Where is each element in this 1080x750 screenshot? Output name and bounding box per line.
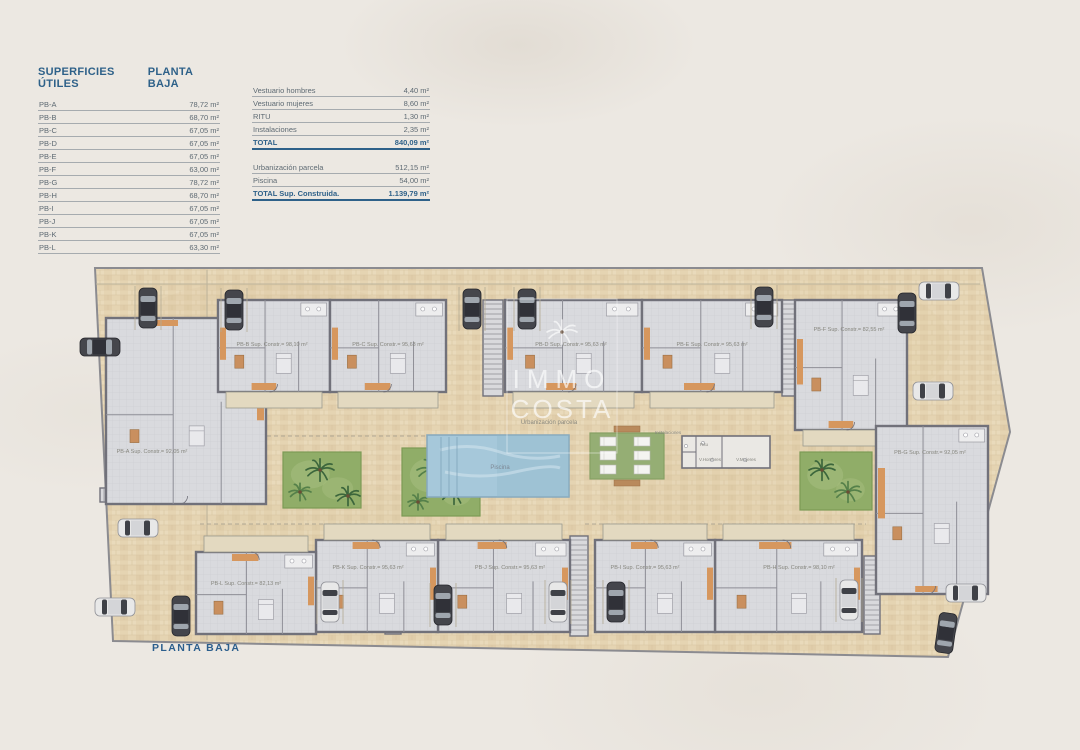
vmujeres-label: V.Mujeres <box>736 457 757 462</box>
unit-label-PB-K: PB-K Sup. Constr.= 95,63 m² <box>332 565 403 571</box>
unit-label-PB-F: PB-F Sup. Constr.= 82,55 m² <box>814 327 885 333</box>
pool-label: Piscina <box>490 465 510 471</box>
sun-lounger-icon <box>634 451 650 460</box>
unit-label-PB-L: PB-L Sup. Constr.= 82,13 m² <box>211 581 281 587</box>
pool: Piscina <box>427 435 569 497</box>
site-plan: PB-A Sup. Constr.= 92,05 m²PB-B Sup. Con… <box>0 0 1080 750</box>
unit-PB-G: PB-G Sup. Constr.= 92,05 m² <box>876 426 988 594</box>
instalaciones-label: Instalaciones <box>655 430 682 435</box>
sun-lounger-icon <box>634 465 650 474</box>
car-icon <box>549 582 567 622</box>
unit-PB-C: PB-C Sup. Constr.= 95,63 m² <box>330 300 446 408</box>
car-icon <box>321 582 339 622</box>
car-icon <box>518 289 536 329</box>
unit-PB-F: PB-F Sup. Constr.= 82,55 m² <box>795 300 907 446</box>
plan-title: PLANTA BAJA <box>152 642 240 654</box>
car-icon <box>755 287 773 327</box>
ritu-label: Ritu <box>700 442 708 447</box>
car-icon <box>225 290 243 330</box>
car-icon <box>139 288 157 328</box>
car-icon <box>434 585 452 625</box>
unit-label-PB-H: PB-H Sup. Constr.= 98,10 m² <box>763 565 835 571</box>
watermark-line1: IMMO <box>513 364 612 394</box>
car-icon <box>840 580 858 620</box>
stairs <box>483 300 503 396</box>
car-icon <box>919 282 959 300</box>
unit-label-PB-G: PB-G Sup. Constr.= 92,05 m² <box>894 450 966 456</box>
car-icon <box>172 596 190 636</box>
unit-label-PB-E: PB-E Sup. Constr.= 95,63 m² <box>676 342 747 348</box>
car-icon <box>80 338 120 356</box>
pergola <box>590 426 664 486</box>
watermark-line2: COSTA <box>511 394 614 424</box>
garden <box>283 452 361 508</box>
unit-PB-L: PB-L Sup. Constr.= 82,13 m² <box>196 536 316 634</box>
car-icon <box>463 289 481 329</box>
unit-label-PB-C: PB-C Sup. Constr.= 95,63 m² <box>352 342 424 348</box>
sun-lounger-icon <box>634 437 650 446</box>
car-icon <box>607 582 625 622</box>
stairs <box>570 536 588 636</box>
sun-lounger-icon <box>600 465 616 474</box>
sun-lounger-icon <box>600 451 616 460</box>
car-icon <box>946 584 986 602</box>
garden <box>800 452 872 510</box>
car-icon <box>118 519 158 537</box>
unit-label-PB-I: PB-I Sup. Constr.= 95,63 m² <box>611 565 680 571</box>
unit-label-PB-J: PB-J Sup. Constr.= 95,63 m² <box>475 565 545 571</box>
unit-label-PB-D: PB-D Sup. Constr.= 95,63 m² <box>535 342 607 348</box>
sun-lounger-icon <box>600 437 616 446</box>
car-icon <box>95 598 135 616</box>
vhombres-label: V.Hombres <box>699 457 722 462</box>
unit-label-PB-A: PB-A Sup. Constr.= 92,05 m² <box>117 449 188 455</box>
car-icon <box>913 382 953 400</box>
car-icon <box>898 293 916 333</box>
unit-label-PB-B: PB-B Sup. Constr.= 98,10 m² <box>236 342 307 348</box>
